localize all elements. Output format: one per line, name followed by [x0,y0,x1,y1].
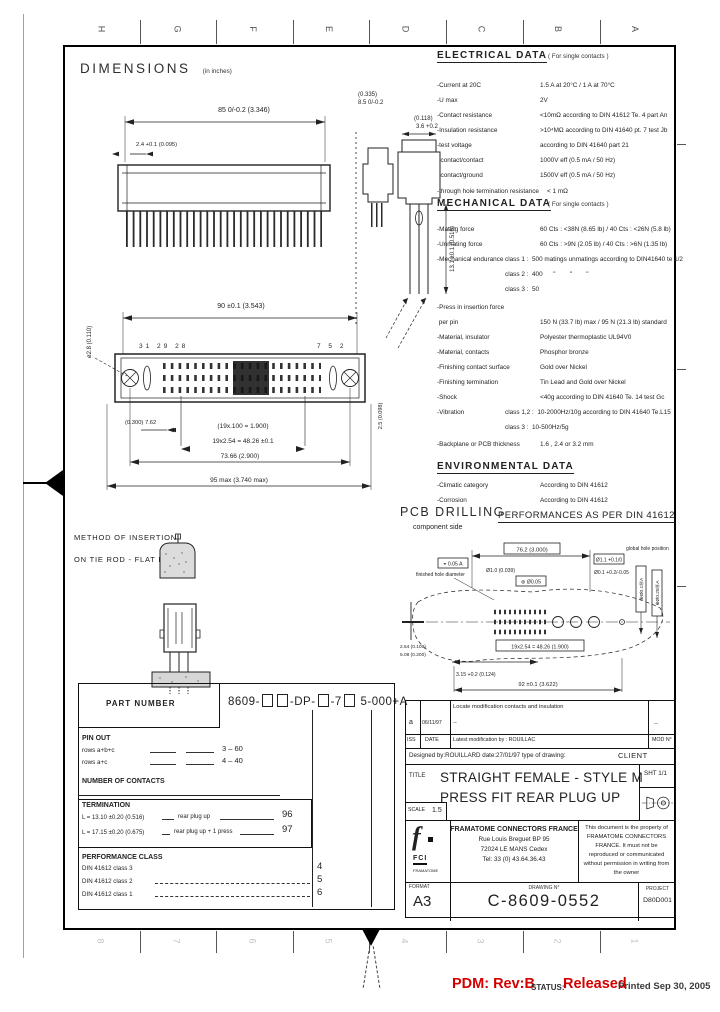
class-row: DIN 41612 class 3 [82,866,133,873]
svg-text:Ø1.1 +0.1/0: Ø1.1 +0.1/0 [596,558,622,564]
leader [162,819,174,820]
zone-number: 3 [476,938,486,943]
drawing-number-label: DRAWING N° [450,885,638,891]
title-block: a 06/11/97 Locate modification contacts … [405,700,676,918]
svg-text:Ø1.0 (0.039): Ø1.0 (0.039) [486,568,515,574]
spec-row: contact/ground1500V eff (0.5 mA / 50 Hz) [437,172,680,179]
svg-text:2.5 (0.098): 2.5 (0.098) [378,403,384,430]
drawing-number: C-8609-0552 [450,892,638,911]
class-row: DIN 41612 class 1 [82,892,133,899]
blank-box [344,694,355,707]
class-code: 4 [317,862,322,872]
drawing-title-line2: PRESS FIT REAR PLUG UP [440,791,620,806]
sheet-number: SHT 1/1 [644,771,667,778]
spec-row: -Unmating force60 Cts : >9N (2.05 lb) / … [437,241,680,248]
contacts-heading: NUMBER OF CONTACTS [82,778,165,786]
leader [240,834,274,835]
class-code: 6 [317,888,322,898]
pn-leader-line [312,710,313,907]
company-address: FRAMATOME CONNECTORS FRANCE Rue Louis Br… [450,821,579,882]
pdm-rev: PDM: Rev:B [452,977,535,993]
printed-date: Printed Sep 30, 2005 [618,982,710,992]
spec-row: per pin150 N (33.7 lb) max / 95 N (21.3 … [437,319,680,326]
svg-text:7 5 2: 7 5 2 [317,343,346,350]
leader [155,896,310,897]
rev-by-label: Latest modification by : ROUILLAC [453,738,535,744]
termination-desc: rear plug up + 1 press [174,829,233,836]
svg-text:95 max (3.740 max): 95 max (3.740 max) [210,477,268,484]
svg-text:⊕Ø0.25ⓂA: ⊕Ø0.25ⓂA [654,580,661,606]
leader [150,764,176,765]
svg-text:⊕Ø0.1ⓂA: ⊕Ø0.1ⓂA [638,577,645,600]
projection-symbol-icon [640,787,675,819]
spec-row: -Material, insulatorPolyester thermoplas… [437,334,680,341]
blank-box [318,694,329,707]
front-view-drawing: ø2.8 (0.110) 90 ±0.1 (3.543) 31 29 28 7 … [83,296,388,508]
title-label: TITLE [409,773,425,780]
spec-row: -Backplane or PCB thickness1.6 , 2.4 or … [437,441,680,448]
leader [155,883,310,884]
svg-text:(0.300) 7.62: (0.300) 7.62 [125,420,156,426]
leader [150,752,176,753]
svg-text:(19x.100 = 1.900): (19x.100 = 1.900) [217,423,268,430]
zone-number: 6 [248,938,258,943]
svg-text:ø2.8 (0.110): ø2.8 (0.110) [87,326,93,358]
zone-letter: A [630,26,640,32]
leader [162,834,170,835]
svg-text:92 ±0.1 (3.622): 92 ±0.1 (3.622) [518,682,557,688]
fci-logo: f FCI FRAMATOME [406,821,451,882]
svg-text:⊕ Ø0.05: ⊕ Ø0.05 [521,580,541,586]
termination-row: L = 13.10 ±0.20 (0.516) [82,815,144,822]
pin-out-value: 4 – 40 [222,757,243,765]
spec-row: contact/contact1000V eff (0.5 mA / 50 Hz… [437,157,680,164]
format-label: FORMAT [409,885,430,891]
drawing-type: CLIENT [618,752,648,760]
company-name: FRAMATOME CONNECTORS FRANCE [450,826,578,833]
spec-row: -test voltageaccording to DIN 41640 part… [437,142,680,149]
fci-logo-glyph: f [412,823,421,852]
svg-text:5.08 (0.200): 5.08 (0.200) [400,652,426,658]
class-code: 5 [317,875,322,885]
drawing-sheet: H G F E D C B A 8 7 6 5 4 3 2 1 DIMENSIO… [0,0,720,1012]
dimensions-title: DIMENSIONS (in inches) [80,62,232,77]
blank-box [262,694,273,707]
dimensions-title-text: DIMENSIONS [80,61,191,76]
zone-letter: F [248,26,258,32]
spec-row: class 3 : 10-500Hz/5g [437,424,680,431]
pin-out-row: rows a+c [82,760,107,767]
pin-out-heading: PIN OUT [82,735,110,743]
top-view-drawing: 85 0/-0.2 (3.346) 2.4 +0.1 (0.095) [98,86,356,266]
spec-row: -Finishing terminationTin Lead and Gold … [437,379,680,386]
spec-row: -U max2V [437,97,680,104]
class-heading: PERFORMANCE CLASS [82,854,163,862]
zone-number: 5 [324,938,334,943]
rev-iss-label: ISS [407,738,416,744]
spec-row: -Mating force60 Cts : <38N (8.65 lb) / 4… [437,226,680,233]
mechanical-heading: MECHANICAL DATA [437,198,551,211]
blank-box [277,694,288,707]
rev-date-label: DATE [425,738,439,744]
fci-logo-dot [428,837,433,842]
termination-code: 97 [282,825,293,835]
property-note: This document is the property of FRAMATO… [578,821,675,882]
fci-logo-text: FCI [413,855,427,865]
pin-out-row: rows a+b+c [82,748,115,755]
leader [186,764,214,765]
rev-iss: a [409,719,413,727]
spec-row: -through hole termination resistance< 1 … [437,188,680,195]
zone-letter: C [476,26,486,33]
zone-number: 4 [400,938,410,943]
svg-text:90 ±0.1 (3.543): 90 ±0.1 (3.543) [217,303,264,310]
svg-text:global hole position: global hole position [626,546,669,552]
svg-text:Ø0.1 +0.2/-0.05: Ø0.1 +0.2/-0.05 [594,570,629,576]
zone-number: 7 [172,938,182,943]
termination-heading: TERMINATION [82,802,130,810]
scale-label: SCALE [408,808,425,814]
svg-text:2.54 (0.100): 2.54 (0.100) [400,644,426,650]
svg-text:(0.118): (0.118) [414,116,433,122]
divider [78,795,280,796]
svg-text:3.6 +0.2: 3.6 +0.2 [416,124,439,130]
company-addr1: Rue Louis Breguet BP 95 [450,836,578,843]
leader [220,819,274,820]
leader [186,752,214,753]
zone-letter: B [553,26,563,32]
spec-row: -Contact resistance<10mΩ according to DI… [437,112,680,119]
spec-row: -Climatic categoryAccording to DIN 41612 [437,482,680,489]
scale-value: 1.5 [432,807,442,815]
spec-row: -CorrosionAccording to DIN 41612 [437,497,680,504]
electrical-note: ( For single contacts ) [548,54,609,61]
company-addr2: 72024 LE MANS Cedex [450,846,578,853]
spec-row: -Vibrationclass 1,2 : 10-2000Hz/10g acco… [437,409,680,416]
environmental-heading: ENVIRONMENTAL DATA [437,461,574,474]
drawing-title-line1: STRAIGHT FEMALE - STYLE M [440,771,643,786]
zone-number: 1 [630,938,640,943]
trim-line [23,14,24,958]
mechanical-note: ( For single contacts ) [548,202,609,209]
rev-desc2: -- [453,720,457,726]
rev-date: 06/11/97 [422,721,442,727]
svg-text:31 29 28: 31 29 28 [139,343,188,350]
fci-logo-sub: FRAMATOME [413,869,438,873]
zone-letter: E [324,26,334,32]
part-number: 8609--DP--7 5-000+A [228,694,408,709]
svg-text:3.15 +0.2 (0.124): 3.15 +0.2 (0.124) [456,672,496,678]
electrical-heading: ELECTRICAL DATA [437,50,547,63]
zone-letter: G [173,25,183,32]
svg-text:19x2.54 = 48.26 ±0.1: 19x2.54 = 48.26 ±0.1 [212,438,274,445]
pcb-drilling-subtitle: component side [413,524,462,532]
status-label: STATUS: [531,984,564,993]
zone-number: 8 [96,938,106,943]
pin-out-value: 3 – 60 [222,745,243,753]
svg-text:(0.335): (0.335) [358,92,377,98]
spec-row: -Current at 20C1.5 A at 20°C / 1 A at 70… [437,82,680,89]
svg-text:finished hole diameter: finished hole diameter [416,572,465,578]
svg-text:⌖ 0.05 A: ⌖ 0.05 A [443,562,463,568]
units-note: (in inches) [203,68,232,75]
spec-row: class 2 : 400 " " " [437,271,680,278]
svg-text:85 0/-0.2 (3.346): 85 0/-0.2 (3.346) [218,107,270,114]
format-value: A3 [413,894,431,911]
svg-text:13.1 ±0.1 (0.516): 13.1 ±0.1 (0.516) [450,226,456,272]
spec-row: -Press in insertion force [437,304,680,311]
zone-letter: D [400,26,410,33]
spec-row: -Shock<40g according to DIN 41640 Te. 14… [437,394,680,401]
spec-row: -Mechanical enduranceclass 1 : 500 matin… [437,256,680,263]
termination-desc: rear plug up [178,814,210,821]
pcb-drilling-drawing: 76.2 (3.000) ⌖ 0.05 A Ø1.1 +0.1/0 global… [398,540,676,698]
margin-tick [677,586,686,587]
zone-number: 2 [553,938,563,943]
company-addr3: Tel: 33 (0) 43.64.36.43 [450,856,578,863]
svg-text:73.66 (2.900): 73.66 (2.900) [221,453,260,460]
designed-by: Designed by:ROUILLARD date:27/01/97 type… [409,753,566,760]
svg-text:76.2 (3.000): 76.2 (3.000) [516,548,547,554]
termination-code: 96 [282,810,293,820]
project-value: D80D001 [638,897,677,904]
rev-desc: Locate modification contacts and insulat… [453,704,564,710]
rev-mod-label: MOD N° [652,738,672,744]
pn-leader-line [371,710,372,907]
rev-mod: -- [654,721,658,727]
class-row: DIN 41612 class 2 [82,879,133,886]
spec-row: class 3 : 50 [437,286,680,293]
svg-text:8.5 0/-0.2: 8.5 0/-0.2 [358,100,384,106]
project-label: PROJECT [638,886,677,892]
part-number-label: PART NUMBER [106,700,176,709]
pcb-drilling-title: PCB DRILLING [400,506,505,520]
termination-row: L = 17.15 ±0.20 (0.675) [82,830,144,837]
svg-text:19x2.54 = 48.26 (1.900): 19x2.54 = 48.26 (1.900) [511,645,569,651]
performances-heading: PERFORMANCES AS PER DIN 41612 [498,511,675,523]
svg-text:2.4 +0.1 (0.095): 2.4 +0.1 (0.095) [136,142,177,148]
insertion-drawing [146,534,236,696]
spec-row: -Insulation resistance>10⁴MΩ according t… [437,127,680,134]
zone-letter: H [96,26,106,33]
spec-row: -Material, contactsPhosphor bronze [437,349,680,356]
spec-row: -Finishing contact surfaceGold over Nick… [437,364,680,371]
